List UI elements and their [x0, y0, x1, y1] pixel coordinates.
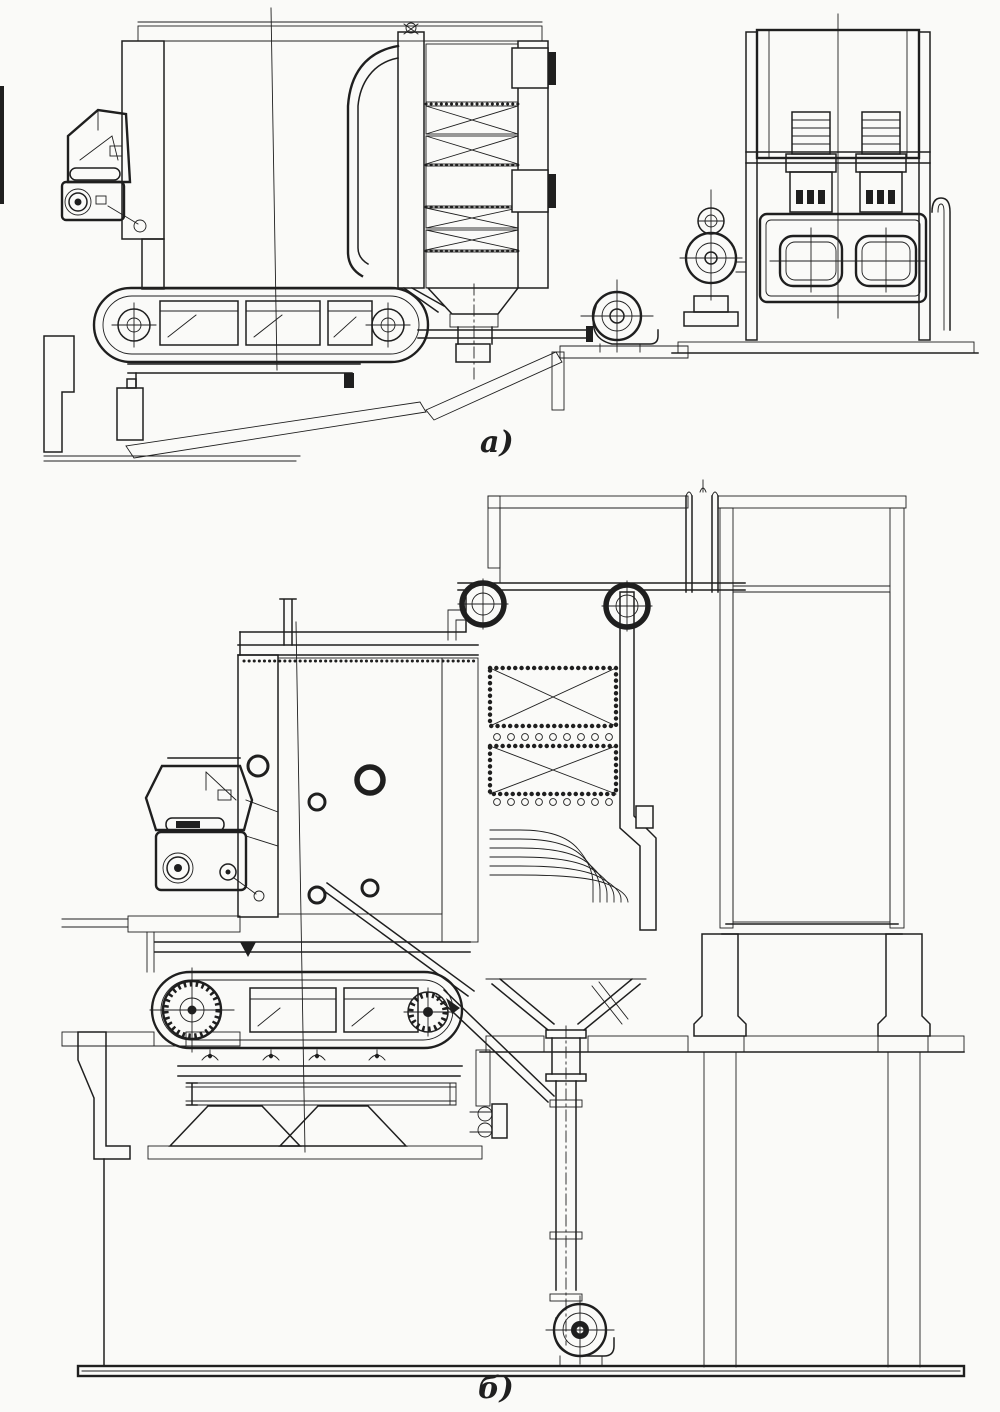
- figure-b-caption: б): [478, 1371, 514, 1406]
- scan-edge-artifact: [0, 86, 4, 204]
- drawing-canvas: а): [0, 0, 1000, 1412]
- engineering-drawing-page: а): [0, 0, 1000, 1412]
- figure-a-caption: а): [480, 425, 514, 460]
